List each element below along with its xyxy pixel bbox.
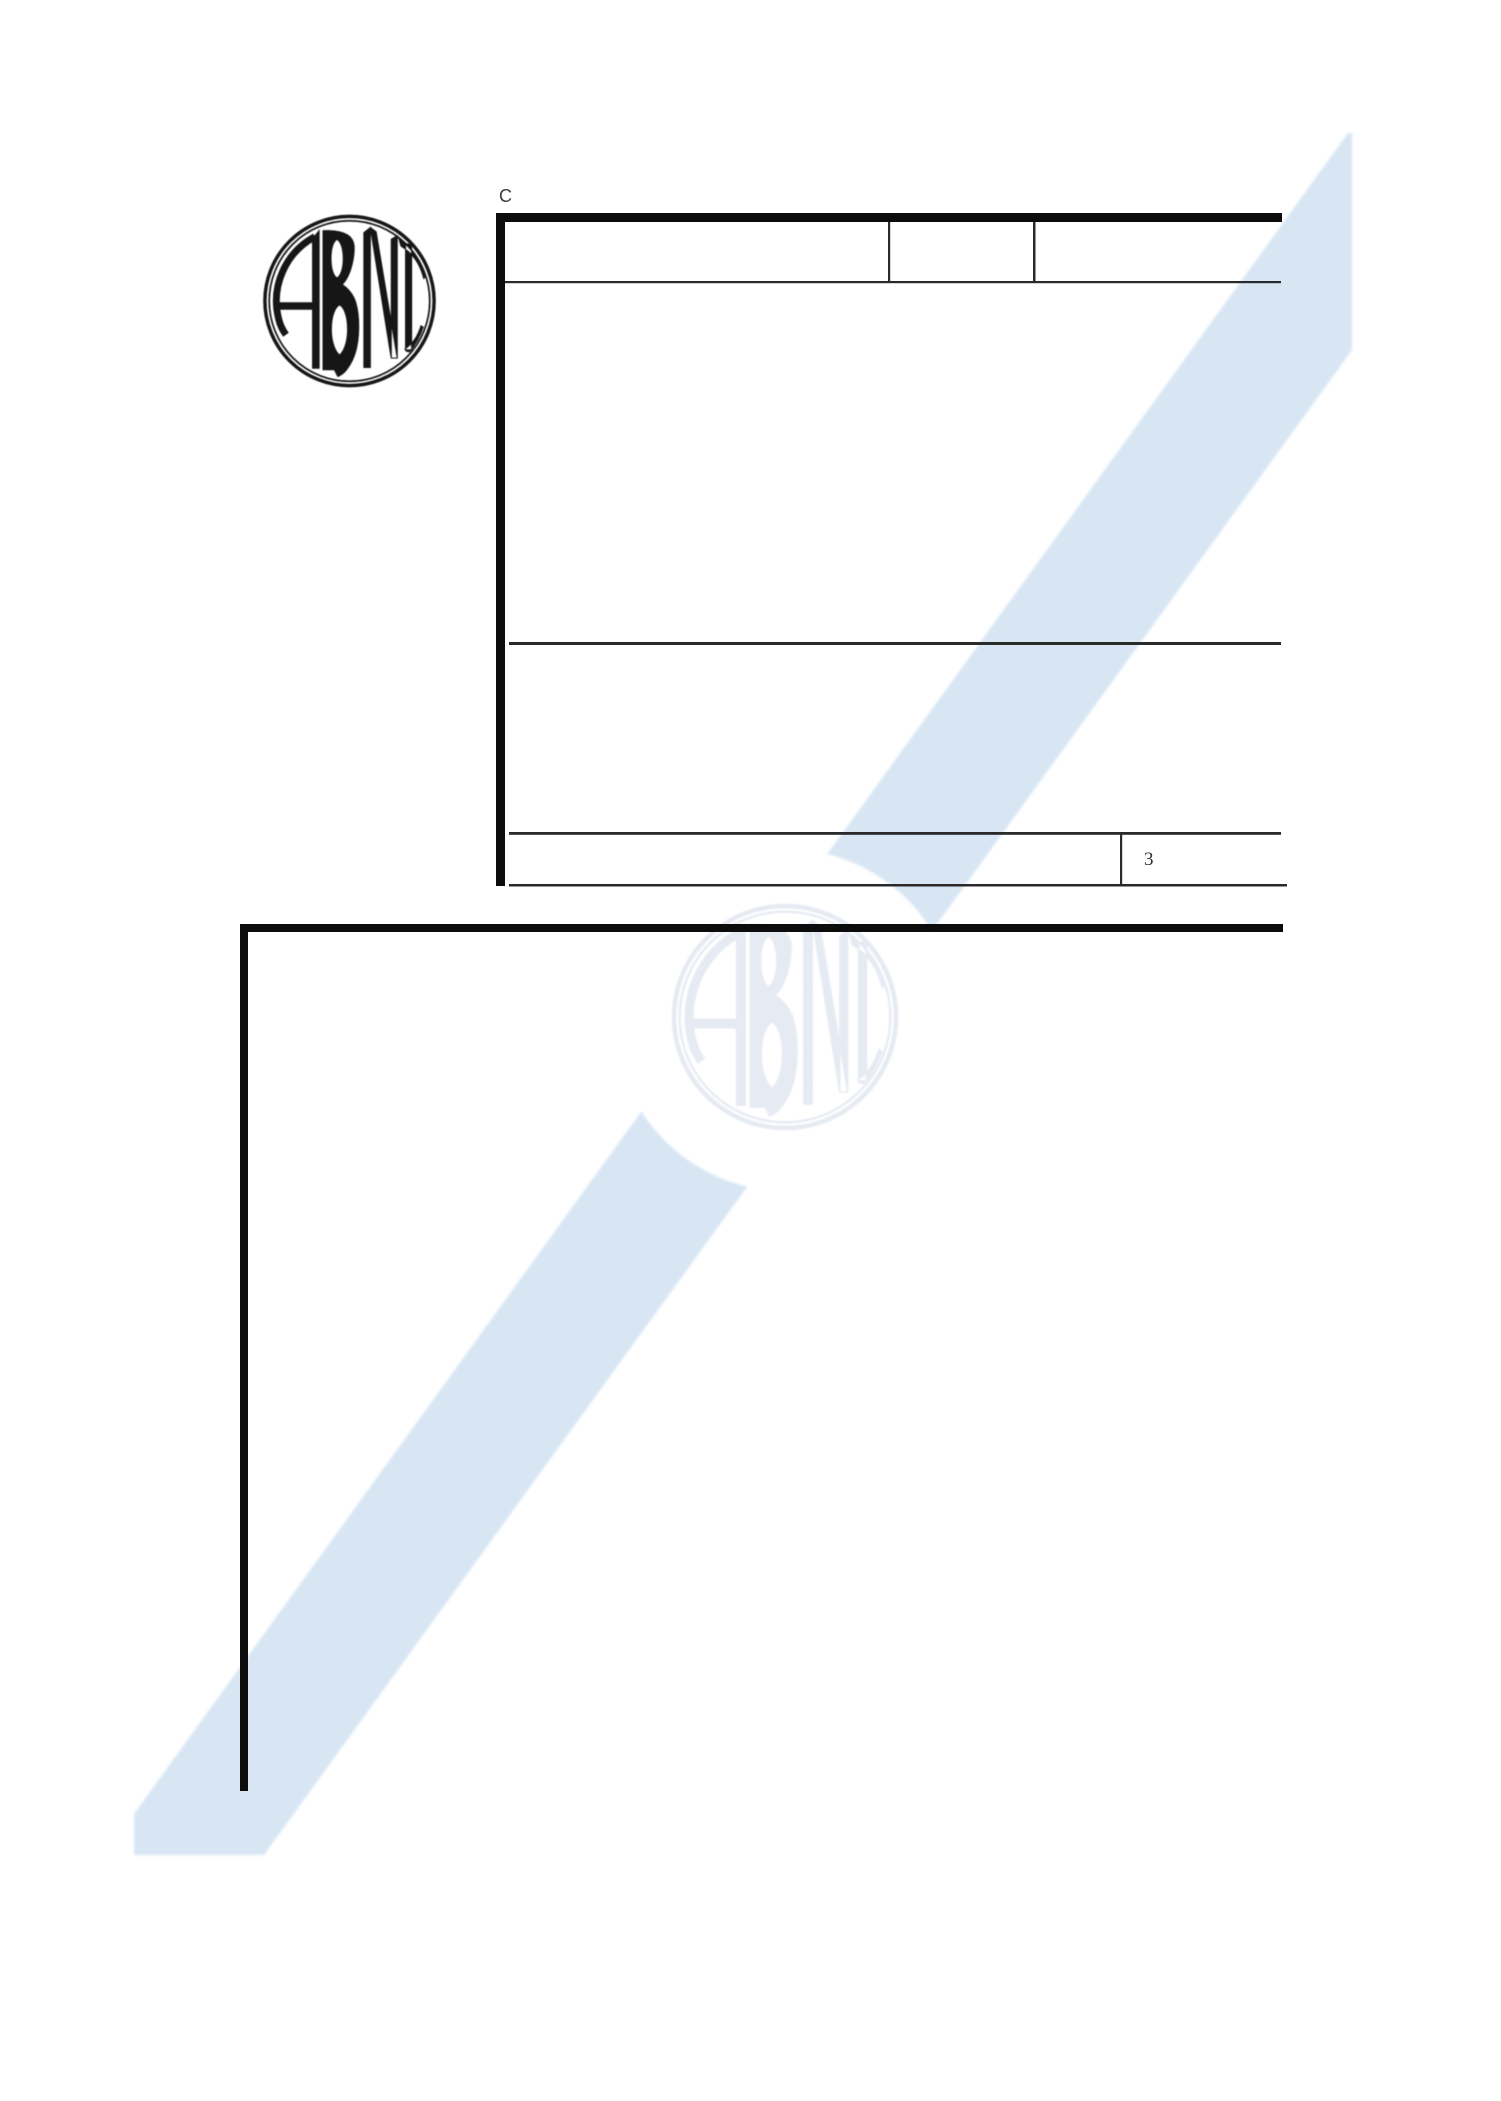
svg-text:3: 3: [1144, 849, 1154, 870]
svg-text:C: C: [499, 186, 512, 206]
